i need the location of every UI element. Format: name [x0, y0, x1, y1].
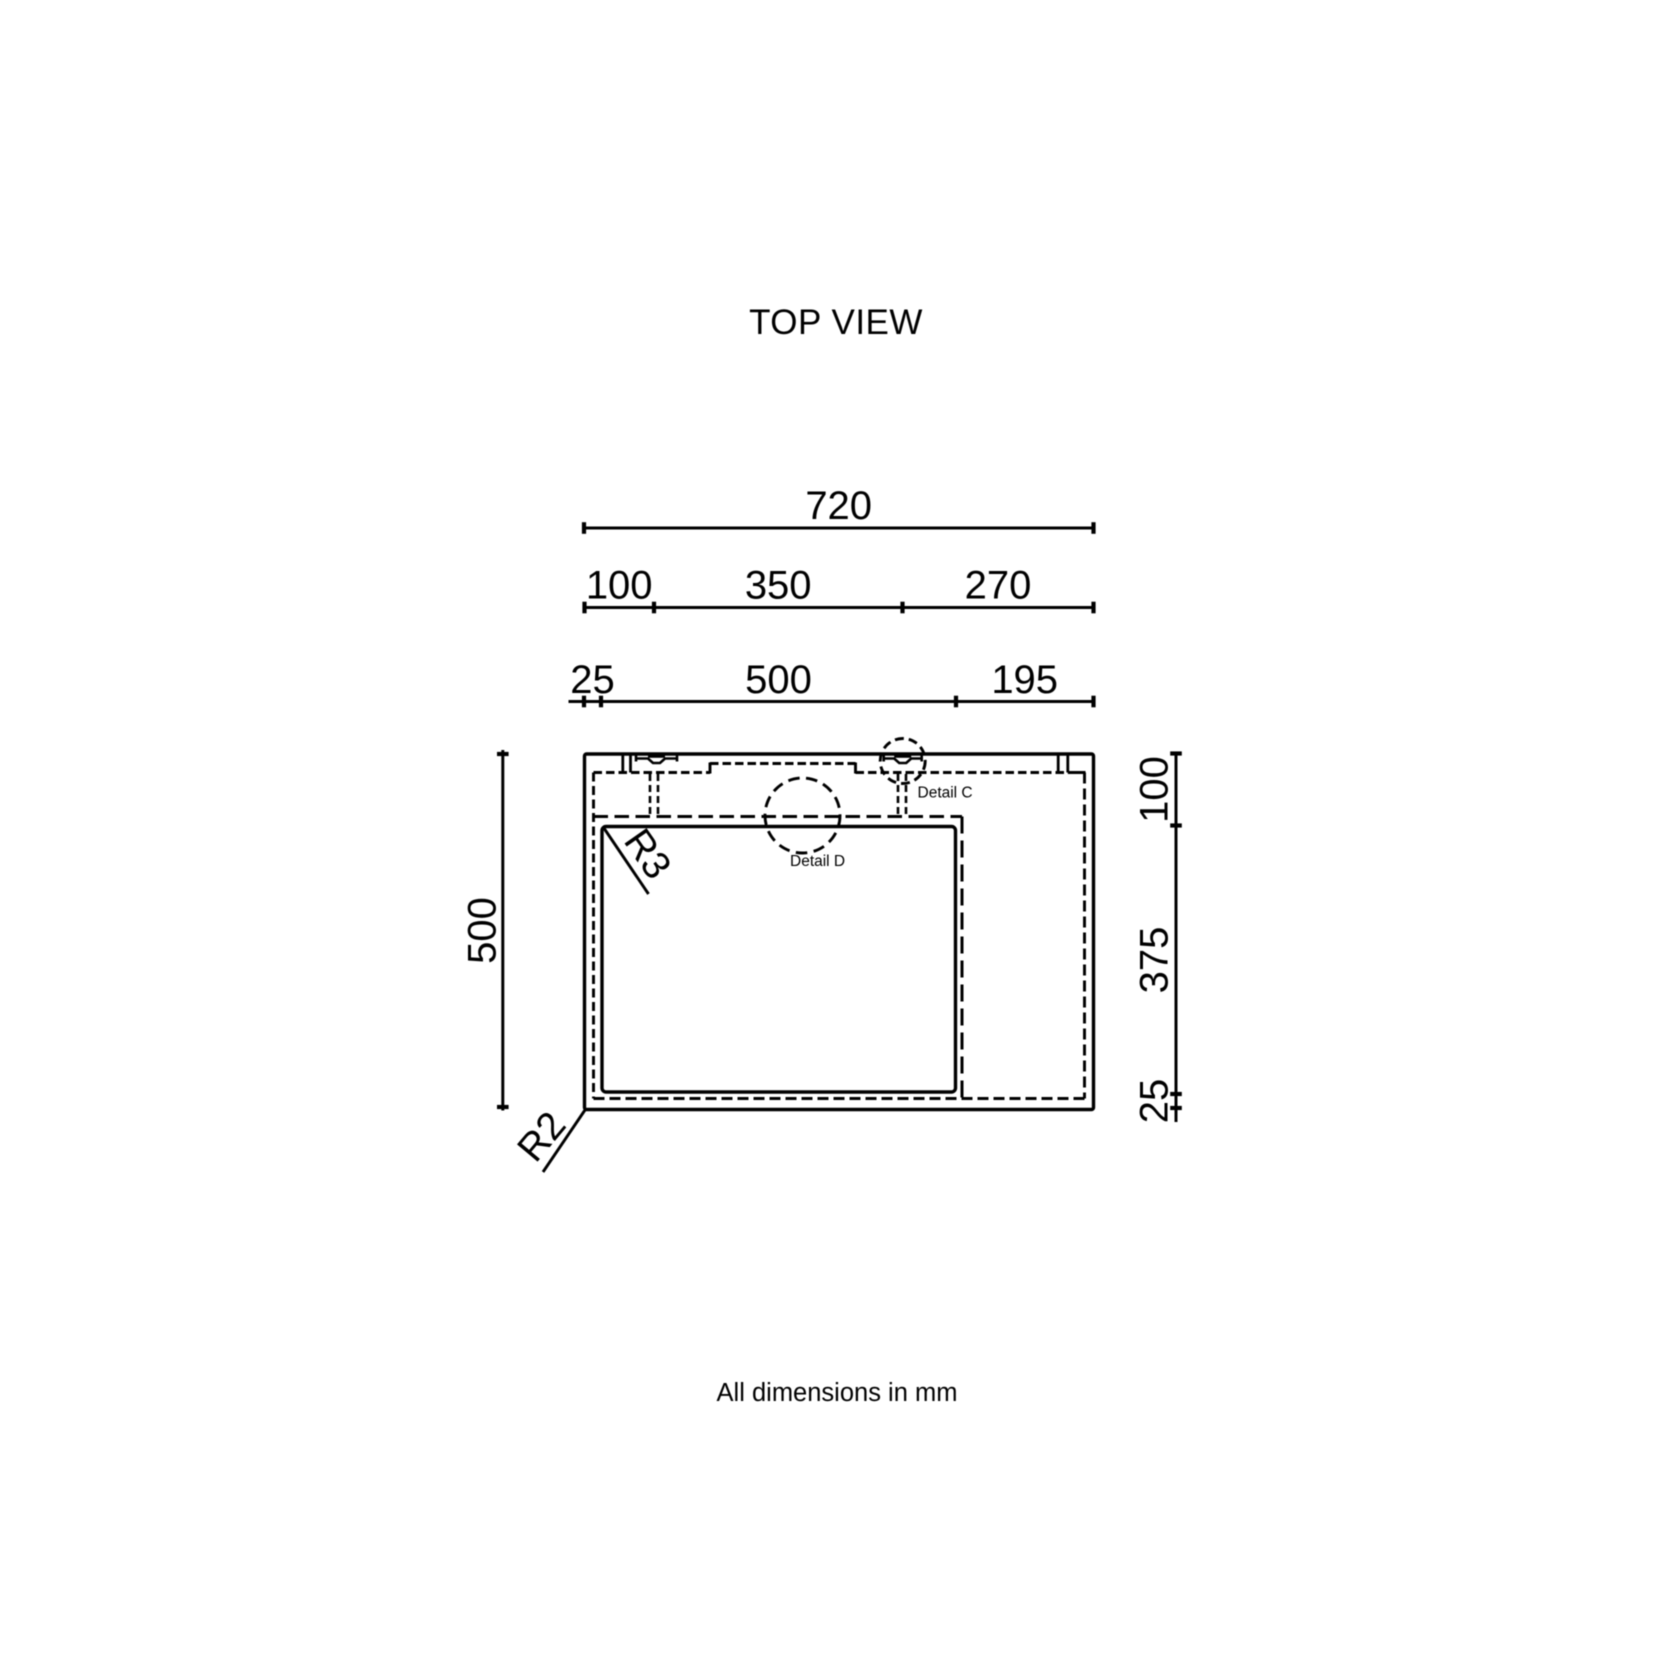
svg-text:25: 25: [570, 658, 615, 702]
svg-text:R2: R2: [509, 1104, 574, 1170]
svg-text:375: 375: [1133, 927, 1177, 994]
svg-text:195: 195: [991, 658, 1058, 702]
svg-text:270: 270: [965, 564, 1032, 608]
svg-text:25: 25: [1133, 1079, 1177, 1124]
svg-text:500: 500: [461, 897, 505, 964]
svg-text:100: 100: [586, 564, 653, 608]
svg-text:Detail D: Detail D: [790, 853, 845, 870]
svg-text:100: 100: [1133, 756, 1177, 823]
svg-text:Detail C: Detail C: [918, 785, 973, 802]
svg-text:TOP VIEW: TOP VIEW: [749, 303, 923, 342]
svg-text:R3: R3: [615, 821, 679, 887]
svg-text:350: 350: [745, 564, 812, 608]
svg-text:All dimensions in mm: All dimensions in mm: [717, 1379, 958, 1407]
svg-text:720: 720: [805, 484, 872, 528]
svg-text:500: 500: [745, 658, 812, 702]
